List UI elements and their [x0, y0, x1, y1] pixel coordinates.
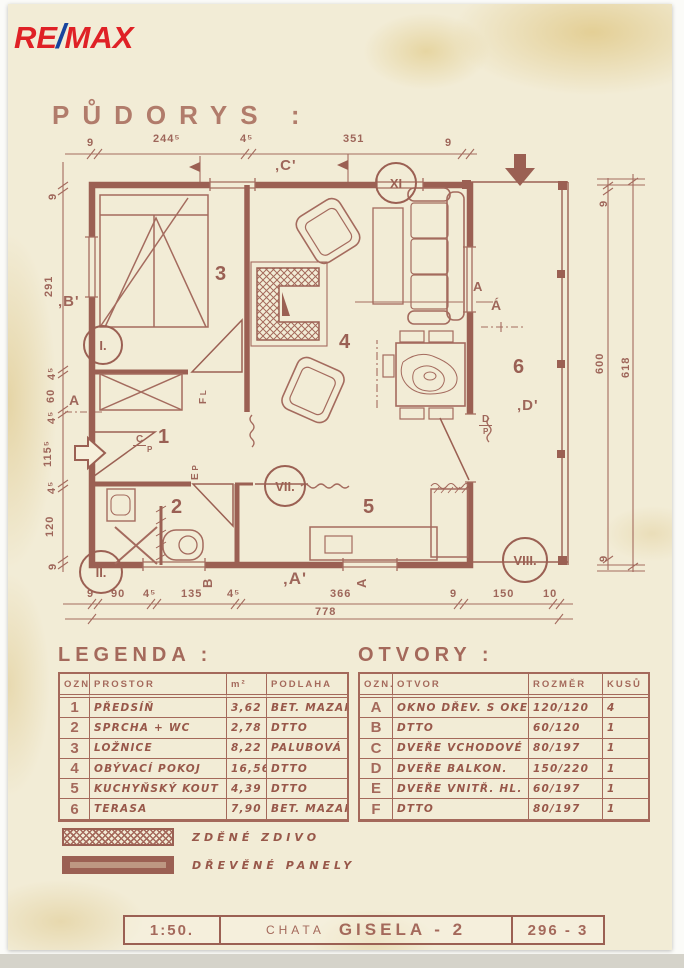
openings-header-otvor: OTVOR: [393, 674, 529, 698]
door-label-e-sub: P: [191, 465, 200, 470]
dim-top-1: 244⁵: [153, 134, 181, 145]
armchair-top: [292, 195, 363, 267]
openings-row-ozn: C: [360, 739, 393, 759]
dim-left-6: 4⁵: [47, 481, 58, 494]
logo-re: RE: [14, 20, 57, 55]
section-flags: [189, 160, 348, 172]
entrance-arrow-icon: [75, 438, 105, 468]
coffee-table: [377, 331, 465, 419]
title-block-project: CHATA: [266, 923, 325, 937]
openings-row-rozmer: 60/120: [529, 718, 603, 738]
dim-right-total: 618: [621, 357, 632, 378]
legend-row-prostor: OBÝVACÍ POKOJ: [90, 759, 227, 779]
dim-left-7: 120: [45, 516, 56, 537]
legend-row-m2: 16,56: [227, 759, 267, 779]
openings-row-otvor: OKNO DŘEV. S OKEN.: [393, 698, 529, 718]
openings-row-rozmer: 120/120: [529, 698, 603, 718]
door-label-d-sub: P: [483, 428, 488, 436]
legend-row-m2: 7,90: [227, 799, 267, 819]
openings-row-ozn: B: [360, 718, 393, 738]
dim-left-4: 4⁵: [47, 411, 58, 424]
kitchen-counter: [310, 484, 468, 561]
bathroom-fixtures: [107, 489, 203, 564]
armchair-bottom: [279, 354, 347, 425]
openings-title: OTVORY :: [358, 644, 494, 667]
openings-header-rozmer: ROZMĚR: [529, 674, 603, 698]
title-block-name: CHATA GISELA - 2: [221, 917, 513, 943]
legend-row-prostor: KUCHYŇSKÝ KOUT: [90, 779, 227, 799]
legend-row-m2: 8,22: [227, 739, 267, 759]
door-label-c-sub: P: [147, 446, 152, 454]
dim-top-0: 9: [87, 138, 94, 149]
legend-row-podlaha: DTTO: [267, 779, 347, 799]
marker-c: ‚C': [275, 158, 297, 173]
dim-bottom-3: 135: [181, 589, 202, 600]
dim-bottom-2: 4⁵: [143, 589, 156, 600]
scanner-edge: [0, 954, 684, 968]
legend-row-m2: 4,39: [227, 779, 267, 799]
hatch-label-masonry: ZDĚNÉ ZDIVO: [192, 831, 320, 844]
legend-row-ozn: 3: [60, 739, 90, 759]
openings-row-otvor: DVEŘE VCHODOVÉ: [393, 739, 529, 759]
legend-header-podlaha: PODLAHA: [267, 674, 347, 698]
title-block-house-name: GISELA - 2: [339, 920, 466, 940]
room-number-4: 4: [339, 332, 350, 352]
door-f: [192, 320, 242, 372]
shower-symbol: [115, 527, 157, 564]
detail-circle-xi-label: XI: [390, 176, 402, 191]
hatch-label-panels: DŘEVĚNÉ PANELY: [192, 859, 355, 872]
detail-circle-viii-label: VIII.: [513, 553, 536, 568]
logo-max: MAX: [65, 20, 134, 55]
room-number-6: 6: [513, 357, 524, 377]
hatch-item-panels: DŘEVĚNÉ PANELY: [62, 856, 355, 874]
legend-row-podlaha: DTTO: [267, 759, 347, 779]
legend-row-m2: 3,62: [227, 698, 267, 718]
legend-row-ozn: 5: [60, 779, 90, 799]
section-a-left: A: [69, 393, 80, 407]
dim-left-3: 60: [46, 389, 57, 403]
door-label-e: E P: [191, 465, 201, 480]
legend-row-ozn: 6: [60, 799, 90, 819]
legend-header-ozn: OZN.: [60, 674, 90, 698]
detail-circle-i: I.: [83, 325, 123, 365]
dim-bottom-1: 90: [111, 589, 125, 600]
legend-table: OZN. PROSTOR m² PODLAHA 1 PŘEDSÍŇ 3,62 B…: [58, 672, 349, 822]
title-block-scale: 1:50.: [125, 917, 221, 943]
remax-logo: RE/MAX: [14, 18, 133, 57]
legend-row-podlaha: PALUBOVÁ: [267, 739, 347, 759]
legend-row-ozn: 1: [60, 698, 90, 718]
legend-row-prostor: LOŽNICE: [90, 739, 227, 759]
bed: [100, 195, 208, 327]
openings-row-ozn: E: [360, 779, 393, 799]
title-block: 1:50. CHATA GISELA - 2 296 - 3: [123, 915, 605, 945]
section-a-bottom: A: [355, 578, 368, 588]
openings-row-ozn: A: [360, 698, 393, 718]
legend-row-podlaha: DTTO: [267, 718, 347, 738]
openings-header-kusu: KUSŮ: [603, 674, 648, 698]
dim-left-8: 9: [48, 563, 59, 570]
section-a-right: A: [473, 280, 483, 293]
openings-row-otvor: DTTO: [393, 799, 529, 819]
openings-row-otvor: DTTO: [393, 718, 529, 738]
detail-circle-ii: II.: [79, 550, 123, 594]
dim-left-5: 115⁵: [43, 440, 54, 467]
openings-row-kusu: 1: [603, 739, 648, 759]
legend-row-ozn: 2: [60, 718, 90, 738]
wardrobe: [100, 374, 182, 410]
room-number-1: 1: [158, 427, 169, 447]
dim-left-1: 291: [44, 276, 55, 297]
dim-bottom-5: 366: [330, 589, 351, 600]
legend-row-m2: 2,78: [227, 718, 267, 738]
fireplace: [251, 262, 327, 346]
openings-row-ozn: F: [360, 799, 393, 819]
legend-header-prostor: PROSTOR: [90, 674, 227, 698]
dim-bottom-total: 778: [315, 607, 336, 618]
door-label-f: F L: [199, 390, 209, 404]
openings-row-rozmer: 60/197: [529, 779, 603, 799]
door-label-f-main: F: [198, 398, 209, 404]
dim-bottom-4: 4⁵: [227, 589, 240, 600]
openings-row-kusu: 1: [603, 718, 648, 738]
openings-row-kusu: 4: [603, 698, 648, 718]
openings-row-otvor: DVEŘE VNITŘ. HL.: [393, 779, 529, 799]
dim-right-0: 9: [599, 200, 610, 207]
legend-row-podlaha: BET. MAZAN.: [267, 698, 347, 718]
dim-right-2: 9: [599, 555, 610, 562]
door-label-f-sub: L: [199, 390, 208, 395]
detail-circle-i-label: I.: [99, 338, 106, 353]
openings-header-ozn: OZN.: [360, 674, 393, 698]
marker-d: ‚D': [517, 398, 539, 413]
north-arrow-icon: [505, 154, 535, 186]
side-shelf: [373, 208, 403, 304]
marker-b: ‚B': [58, 294, 80, 309]
openings-table: OZN. OTVOR ROZMĚR KUSŮ A OKNO DŘEV. S OK…: [358, 672, 650, 822]
legend-row-prostor: TERASA: [90, 799, 227, 819]
detail-circle-vii: VII.: [264, 465, 306, 507]
dim-top-4: 9: [445, 138, 452, 149]
legend-header-m2: m²: [227, 674, 267, 698]
masonry-hatch-swatch: [62, 828, 174, 846]
detail-circle-xi: XI: [375, 162, 417, 204]
floor-plan: 9 244⁵ 4⁵ 351 9 9 291 4⁵ 60 4⁵ 115⁵ 4⁵ 1…: [25, 112, 650, 647]
openings-row-kusu: 1: [603, 779, 648, 799]
dim-right-1: 600: [595, 353, 606, 374]
door-e: [193, 484, 233, 526]
dim-bottom-7: 150: [493, 589, 514, 600]
door-label-e-main: E: [190, 473, 201, 480]
legend-row-prostor: SPRCHA + WC: [90, 718, 227, 738]
dim-left-2: 4⁵: [47, 367, 58, 380]
openings-row-rozmer: 80/197: [529, 739, 603, 759]
room-number-3: 3: [215, 264, 226, 284]
openings-row-rozmer: 150/220: [529, 759, 603, 779]
detail-circle-vii-label: VII.: [275, 479, 295, 494]
dim-top-2: 4⁵: [240, 134, 253, 145]
detail-circle-viii: VIII.: [502, 537, 548, 583]
hatch-item-masonry: ZDĚNÉ ZDIVO: [62, 828, 320, 846]
legend-title: LEGENDA :: [58, 644, 212, 667]
marker-a-acute: Á: [491, 298, 502, 312]
legend-row-podlaha: BET. MAZAN.: [267, 799, 347, 819]
dim-bottom-6: 9: [450, 589, 457, 600]
marker-a: ‚A': [283, 570, 307, 587]
room-number-2: 2: [171, 497, 182, 517]
paper-sheet: RE/MAX PŮDORYS :: [8, 4, 672, 950]
section-b-bottom: B: [201, 578, 214, 588]
door-label-d: D: [479, 415, 492, 426]
dim-left-0: 9: [48, 193, 59, 200]
detail-circle-ii-label: II.: [96, 565, 107, 580]
openings-row-kusu: 1: [603, 759, 648, 779]
inner-walls: [92, 185, 308, 565]
room-number-5: 5: [363, 497, 374, 517]
legend-row-ozn: 4: [60, 759, 90, 779]
openings-row-kusu: 1: [603, 799, 648, 819]
openings-row-otvor: DVEŘE BALKON.: [393, 759, 529, 779]
title-block-number: 296 - 3: [513, 917, 603, 943]
sofa: [408, 188, 464, 324]
openings-row-rozmer: 80/197: [529, 799, 603, 819]
dim-bottom-8: 10: [543, 589, 557, 600]
dim-top-3: 351: [343, 134, 364, 145]
wood-panel-swatch: [62, 856, 174, 874]
door-label-c: C: [133, 435, 146, 446]
openings-row-ozn: D: [360, 759, 393, 779]
legend-row-prostor: PŘEDSÍŇ: [90, 698, 227, 718]
